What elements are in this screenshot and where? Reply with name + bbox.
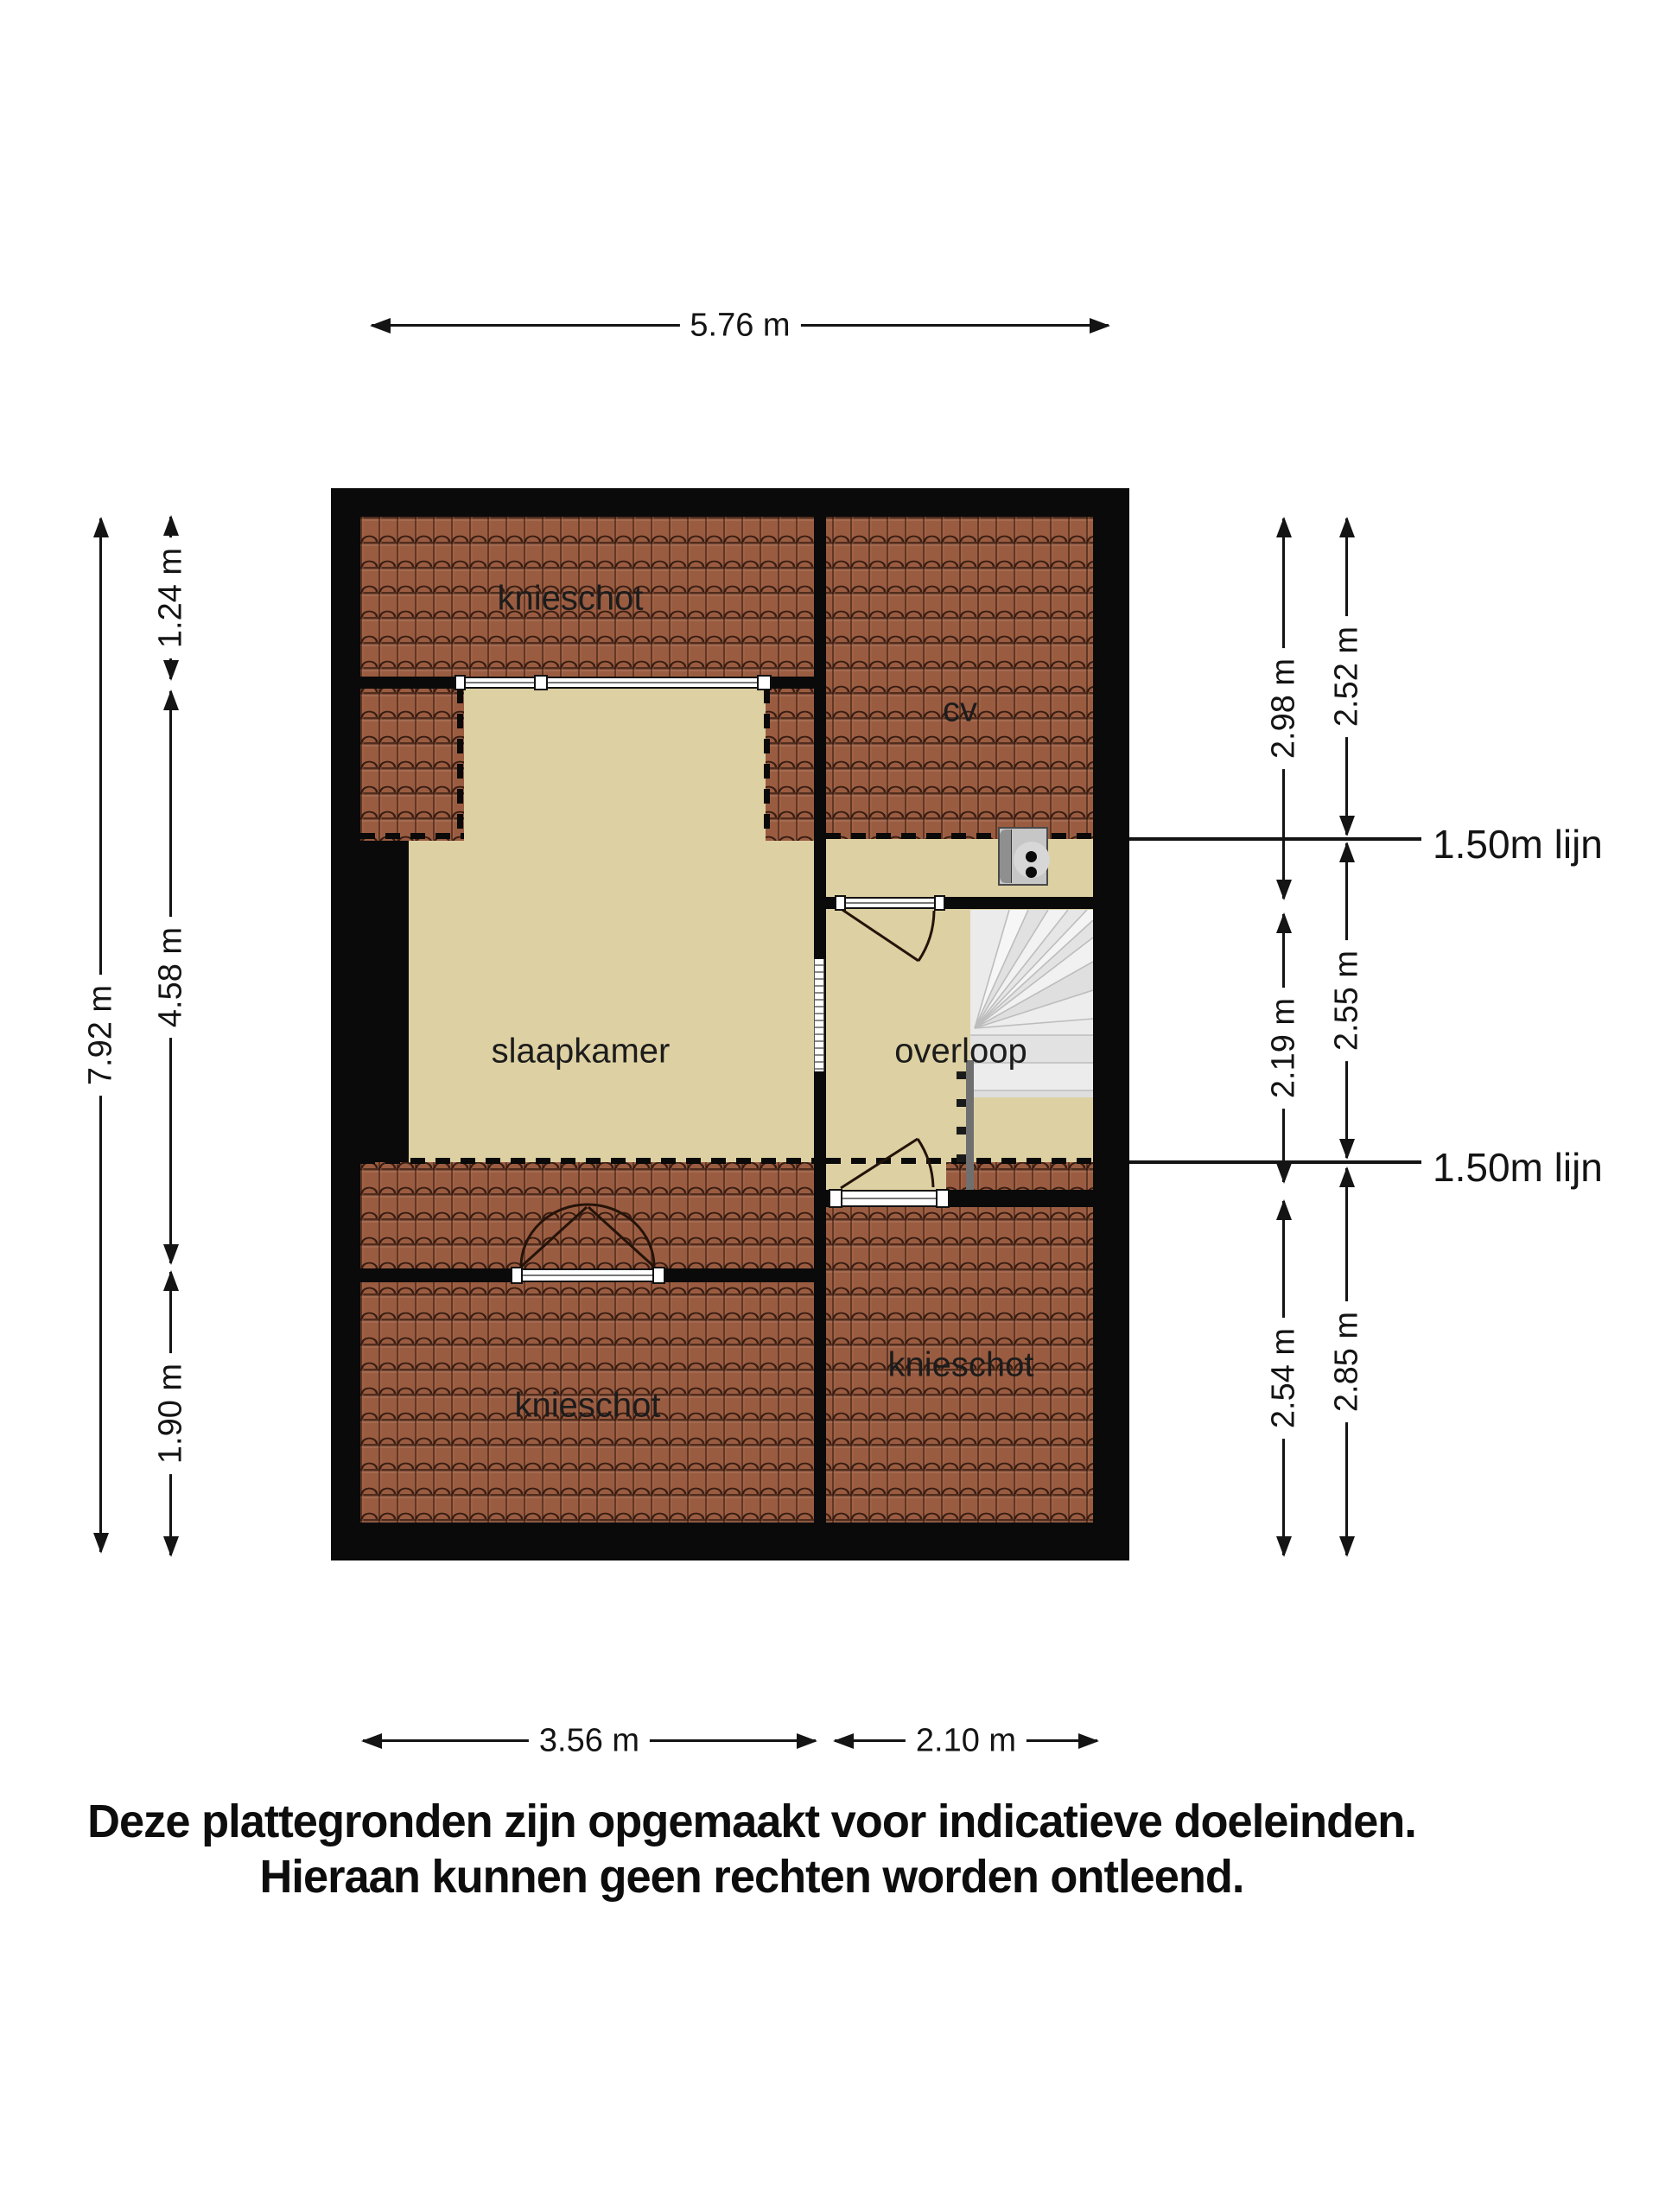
dimension-top-width: 5.76 m	[372, 324, 1109, 327]
dashed-150-line-topleft	[360, 833, 464, 839]
stair-railing	[966, 1060, 974, 1190]
dimension-left-3: 1.90 m	[169, 1272, 172, 1555]
floorplan-page: knieschot cv slaapkamer overloop kniesch…	[0, 0, 1659, 2212]
dimension-left-total: 7.92 m	[99, 518, 102, 1552]
room-label-overloop: overloop	[894, 1033, 1027, 1071]
dimension-right-inner-2: 2.19 m	[1282, 914, 1285, 1182]
knieschot-wall-top-right	[770, 677, 814, 689]
dashed-150-edge-left	[457, 689, 463, 837]
dimension-left-1: 1.24 m	[169, 517, 172, 679]
room-label-slaapkamer: slaapkamer	[492, 1033, 671, 1071]
slaapkamer-floor-bump	[464, 689, 766, 841]
window-knieschot-top	[456, 677, 770, 689]
cv-unit-dot	[1026, 851, 1037, 862]
room-label-cv: cv	[943, 691, 977, 730]
dimension-right-inner-3: 2.54 m	[1282, 1201, 1285, 1555]
cv-boiler-unit	[998, 827, 1048, 886]
dimension-bottom-left: 3.56 m	[363, 1739, 816, 1742]
dimension-right-outer-1: 2.52 m	[1345, 518, 1348, 835]
dimension-bottom-right: 2.10 m	[835, 1739, 1097, 1742]
railing-baluster	[957, 1071, 966, 1079]
dimension-right-outer-2: 2.55 m	[1345, 843, 1348, 1158]
left-wall-thick-section	[360, 841, 409, 1162]
dashed-150-line-cv	[826, 833, 1093, 839]
window-mullion	[534, 675, 548, 690]
door-overloop-south	[825, 1119, 955, 1197]
disclaimer-line-2: Hieraan kunnen geen rechten worden ontle…	[22, 1849, 1481, 1904]
slaapkamer-floor	[409, 841, 814, 1162]
room-label-knieschot-bottom-right: knieschot	[888, 1346, 1034, 1385]
dimension-right-inner-1: 2.98 m	[1282, 518, 1285, 899]
disclaimer-text: Deze plattegronden zijn opgemaakt voor i…	[22, 1794, 1481, 1904]
room-label-knieschot-bottom-left: knieschot	[515, 1387, 661, 1426]
cv-unit-dot	[1026, 867, 1037, 878]
cv-unit-left-panel	[1000, 829, 1012, 883]
dashed-150-line2-left	[360, 1158, 814, 1164]
dimension-right-outer-3: 2.85 m	[1345, 1168, 1348, 1555]
dimension-left-2: 4.58 m	[169, 691, 172, 1263]
window-cap	[454, 675, 466, 690]
opening-interior-wall	[814, 959, 824, 1071]
door-overloop-north	[825, 899, 955, 976]
railing-baluster	[957, 1099, 966, 1107]
height-line-150-2-label: 1.50m lijn	[1433, 1144, 1603, 1191]
disclaimer-line-1: Deze plattegronden zijn opgemaakt voor i…	[22, 1794, 1481, 1849]
knieschot-wall-top-left	[360, 677, 456, 689]
cv-floor-strip	[826, 839, 1093, 897]
double-door-slaapkamer	[484, 1175, 709, 1282]
dashed-150-edge-right	[764, 689, 770, 837]
railing-baluster	[957, 1127, 966, 1135]
railing-baluster	[957, 1154, 966, 1162]
height-line-150-1	[1129, 837, 1421, 841]
room-label-knieschot-top: knieschot	[498, 580, 644, 619]
height-line-150-1-label: 1.50m lijn	[1433, 821, 1603, 868]
window-cap	[757, 675, 772, 690]
